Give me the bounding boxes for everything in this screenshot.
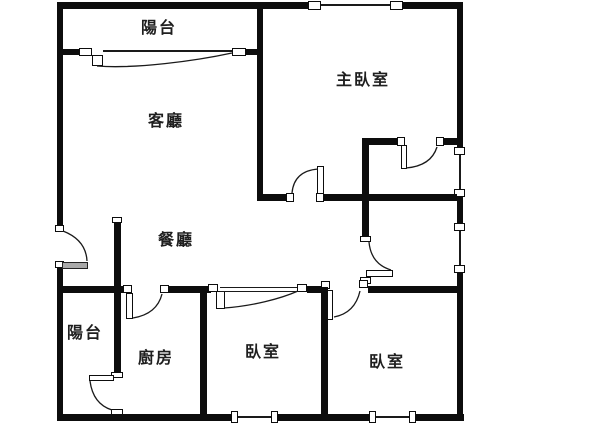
door-swing-arc: [133, 294, 162, 318]
door-leaf: [317, 166, 324, 195]
door-jamb: [123, 285, 132, 293]
wall-master-south-a: [263, 194, 288, 201]
wall-end-cap: [360, 236, 371, 242]
door-leaf-stub: [92, 55, 103, 66]
door-leaf: [126, 293, 133, 319]
opening-header-line: [220, 291, 300, 292]
room-label-balcony-bottom: 陽台: [67, 326, 103, 342]
opening-header-line: [220, 287, 300, 288]
door-swing-arcs: [0, 0, 600, 425]
window-end-marker: [454, 265, 465, 273]
door-swing-arc: [97, 53, 232, 67]
wall-right-2: [457, 195, 463, 226]
wall-top-left: [57, 2, 311, 9]
door-swing-arc: [292, 169, 318, 193]
door-swing-arc: [90, 381, 112, 410]
door-jamb: [232, 48, 246, 56]
door-leaf: [89, 375, 114, 381]
door-jamb: [111, 409, 123, 415]
door-swing-arc: [63, 231, 87, 261]
door-jamb: [316, 193, 324, 202]
wall-top-right: [401, 2, 463, 9]
door-jamb: [55, 225, 64, 232]
window-glass-bottom-2: [375, 416, 412, 418]
wall-balcony-top-a: [57, 49, 80, 55]
wall-master-south-b: [324, 194, 457, 201]
window-end-marker: [409, 411, 416, 423]
window-glass-right-1: [459, 154, 461, 192]
opening-header-line: [103, 50, 233, 52]
door-jamb: [79, 48, 92, 56]
wall-south-a: [57, 286, 125, 293]
floor-plan: 陽台 主臥室 客廳 餐廳 陽台 廚房 臥室 臥室: [0, 0, 600, 425]
room-label-bedroom-center: 臥室: [245, 345, 281, 361]
wall-right-1: [457, 2, 463, 150]
entrance-door-leaf: [62, 262, 88, 269]
wall-kitchen-divider: [200, 287, 207, 421]
wall-left-upper: [57, 2, 63, 226]
window-end-marker: [454, 147, 465, 155]
wall-right-3: [457, 271, 463, 421]
door-swing-arc: [406, 147, 437, 168]
room-label-kitchen: 廚房: [138, 351, 174, 367]
door-swing-arc: [334, 291, 360, 317]
room-label-bedroom-right: 臥室: [369, 355, 405, 371]
room-label-dining-room: 餐廳: [158, 233, 194, 249]
door-swing-arc: [369, 242, 391, 270]
room-label-balcony-top: 陽台: [141, 21, 177, 37]
door-jamb: [359, 280, 368, 288]
window-glass-bottom-1: [237, 416, 274, 418]
wall-vestibule-a: [114, 222, 121, 287]
door-jamb: [160, 285, 169, 293]
door-leaf-stub: [216, 291, 225, 309]
room-label-living-room: 客廳: [148, 114, 184, 130]
door-leaf: [401, 145, 407, 169]
wall-masterbath-b: [444, 138, 457, 145]
window-end-marker: [369, 411, 376, 423]
door-jamb: [436, 137, 444, 146]
wall-bedroom-divider: [321, 287, 328, 421]
wall-living-master: [257, 2, 263, 201]
wall-vestibule-b: [114, 293, 121, 373]
window-end-marker: [271, 411, 278, 423]
door-jamb: [297, 284, 307, 292]
window-end-marker: [390, 1, 403, 10]
window-end-marker: [454, 223, 465, 231]
wall-bottom-1: [57, 414, 234, 421]
wall-hall-vert-a: [362, 138, 369, 201]
door-leaf: [366, 270, 393, 277]
window-glass-right-2: [459, 230, 461, 268]
window-glass-top: [315, 4, 397, 6]
wall-hall-vert-b: [362, 201, 369, 237]
wall-south-d: [368, 286, 463, 293]
room-label-master-bedroom: 主臥室: [336, 73, 390, 89]
window-end-marker: [308, 1, 321, 10]
window-end-marker: [231, 411, 238, 423]
door-jamb: [286, 193, 294, 202]
door-swing-arc: [224, 291, 298, 308]
